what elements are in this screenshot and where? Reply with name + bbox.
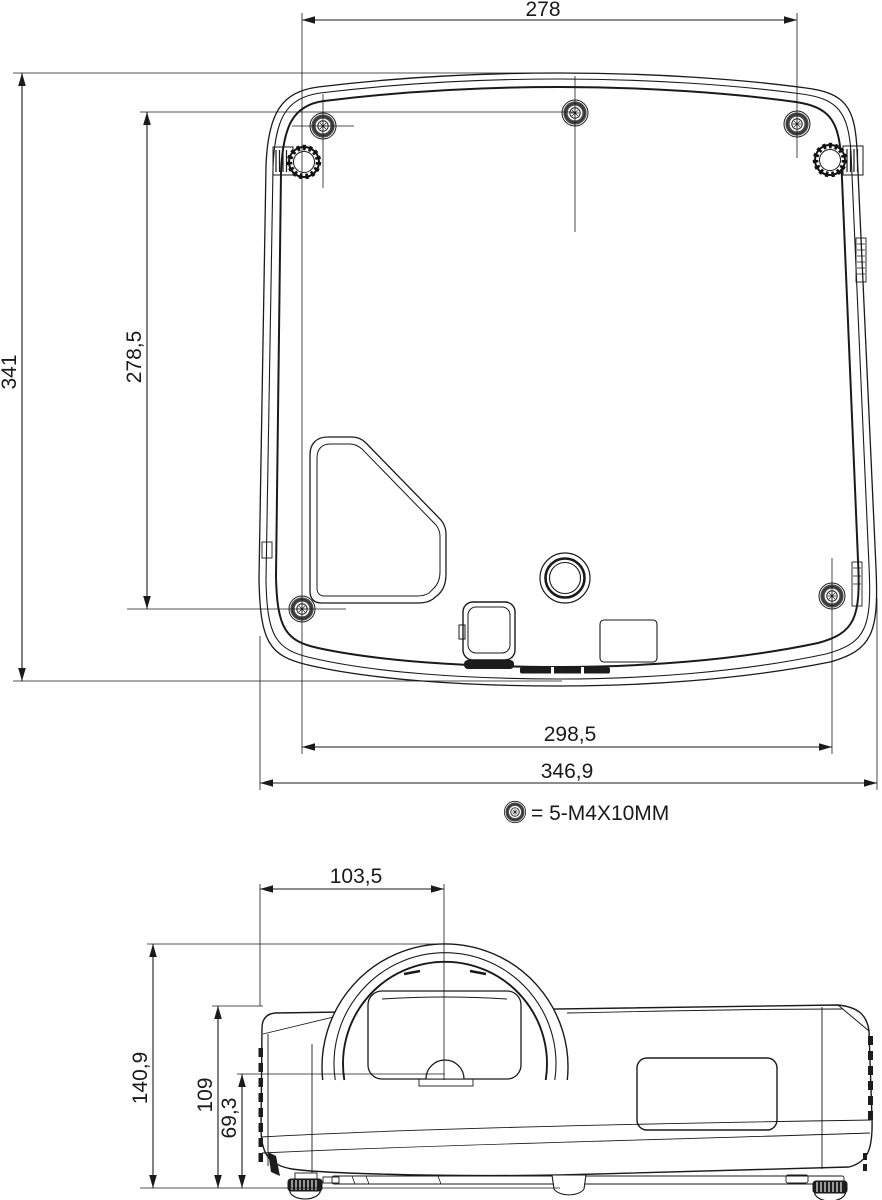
front-foot-left	[273, 147, 319, 177]
vent-cutout	[310, 437, 446, 603]
extension-lines	[13, 13, 877, 790]
left-edge-vents	[259, 1048, 281, 1176]
dimension-drawing: 278 341 278,5 298,5 346,9 = 5-M4X10MM	[0, 0, 882, 1200]
dim-label-screw-width: 298,5	[544, 723, 597, 746]
dim-label-lens-offset: 103,5	[330, 865, 383, 888]
screw-hole-icon	[504, 801, 525, 822]
foot-pad-left	[323, 1177, 339, 1183]
dim-label-overall-depth: 341	[0, 354, 21, 389]
drawing-page: 278 341 278,5 298,5 346,9 = 5-M4X10MM	[0, 0, 882, 1200]
foot-bracket	[295, 1173, 317, 1179]
label-plate	[600, 620, 657, 662]
front-foot-right	[815, 145, 863, 175]
front-view	[259, 944, 874, 1200]
rear-foot-mechanism	[459, 602, 515, 669]
dim-label-overall-height: 140,9	[129, 1052, 152, 1105]
legend-text: = 5-M4X10MM	[531, 802, 669, 825]
adjustable-foot-left-icon	[288, 1179, 322, 1199]
lens-dome	[322, 944, 568, 1086]
bottom-view-dimensions: 278 341 278,5 298,5 346,9	[0, 0, 877, 790]
center-foot	[552, 1175, 586, 1195]
dim-label-overall-width: 346,9	[541, 760, 594, 783]
projector-bottom-outline	[259, 73, 877, 686]
dim-label-lens-height: 69,3	[218, 1098, 241, 1139]
bottom-view	[259, 73, 877, 686]
bottom-grille	[520, 667, 610, 674]
knurled-wheel-icon	[289, 147, 319, 177]
lamp-door	[637, 1058, 777, 1130]
dim-label-screw-depth: 278,5	[123, 331, 146, 384]
dimension-lines	[22, 20, 877, 783]
bottom-strip	[332, 1176, 844, 1184]
adjustable-foot-right-icon	[813, 1181, 847, 1200]
dim-label-body-height: 109	[194, 1077, 217, 1112]
knurled-wheel-icon	[815, 145, 845, 175]
dim-label-top-width: 278	[525, 0, 560, 21]
screw-legend: = 5-M4X10MM	[504, 801, 669, 825]
rear-foot	[540, 553, 590, 603]
